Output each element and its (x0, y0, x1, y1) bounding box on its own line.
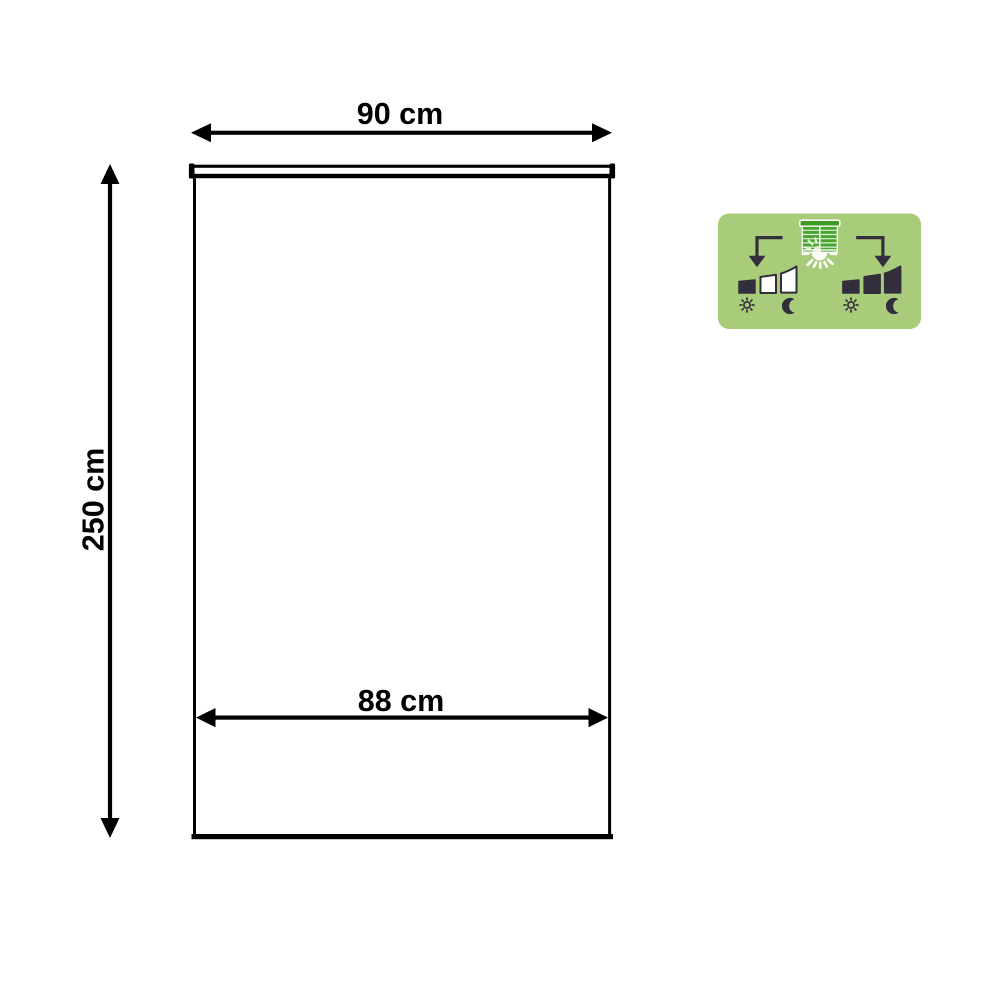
svg-text:88 cm: 88 cm (358, 684, 444, 718)
svg-text:250 cm: 250 cm (77, 448, 111, 551)
svg-text:90 cm: 90 cm (357, 97, 443, 131)
